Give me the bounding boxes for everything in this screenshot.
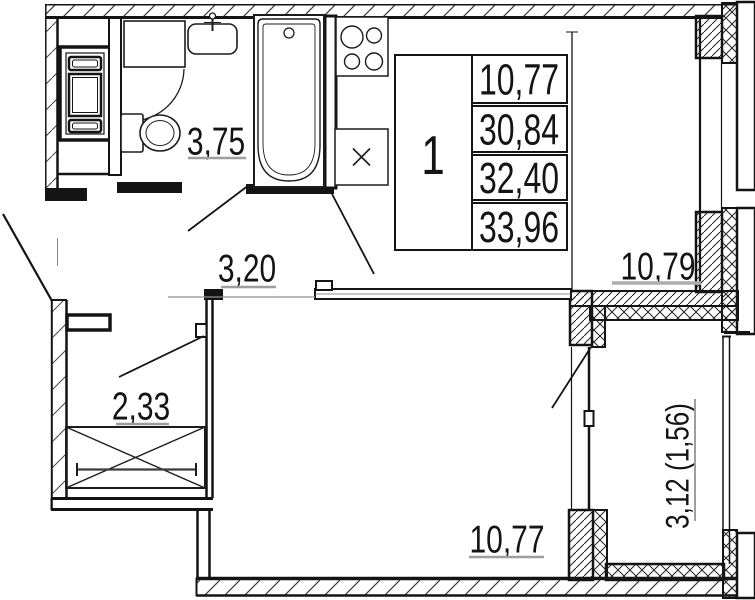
floor-plan: 1 10,77 30,84 32,40 33,96 3,75 3,20 10,7… xyxy=(0,0,755,600)
bathroom-left-partition xyxy=(109,18,121,175)
toilet xyxy=(121,114,180,152)
area-value: 10,77 xyxy=(479,57,559,105)
area-value: 30,84 xyxy=(479,107,559,155)
exterior-wall-left-lower xyxy=(51,300,67,498)
hallway-wall-stub xyxy=(67,315,110,330)
exterior-wall-left-upper xyxy=(45,4,58,189)
kitchen-sink xyxy=(335,129,388,185)
bathroom-wall-bottom-left xyxy=(117,182,182,193)
window-pier-top xyxy=(696,16,722,58)
hall-area-label: 3,20 xyxy=(218,248,276,291)
area-value: 32,40 xyxy=(479,156,559,204)
room-area-label: 10,77 xyxy=(469,519,544,562)
ventilation-shaft xyxy=(60,47,110,140)
unit-number: 1 xyxy=(421,126,444,187)
door-jamb xyxy=(196,324,207,337)
bathtub xyxy=(254,15,324,187)
entry-hall-area-label: 2,33 xyxy=(112,386,170,429)
area-value: 33,96 xyxy=(479,205,559,253)
floor-plan-drawing: 1 10,77 30,84 32,40 33,96 3,75 3,20 10,7… xyxy=(0,0,755,600)
window-pier-bottom xyxy=(696,212,722,292)
stove xyxy=(336,17,388,76)
balcony-area-label: 3,12 (1,56) xyxy=(660,403,696,529)
exterior-wall-top xyxy=(45,4,737,18)
